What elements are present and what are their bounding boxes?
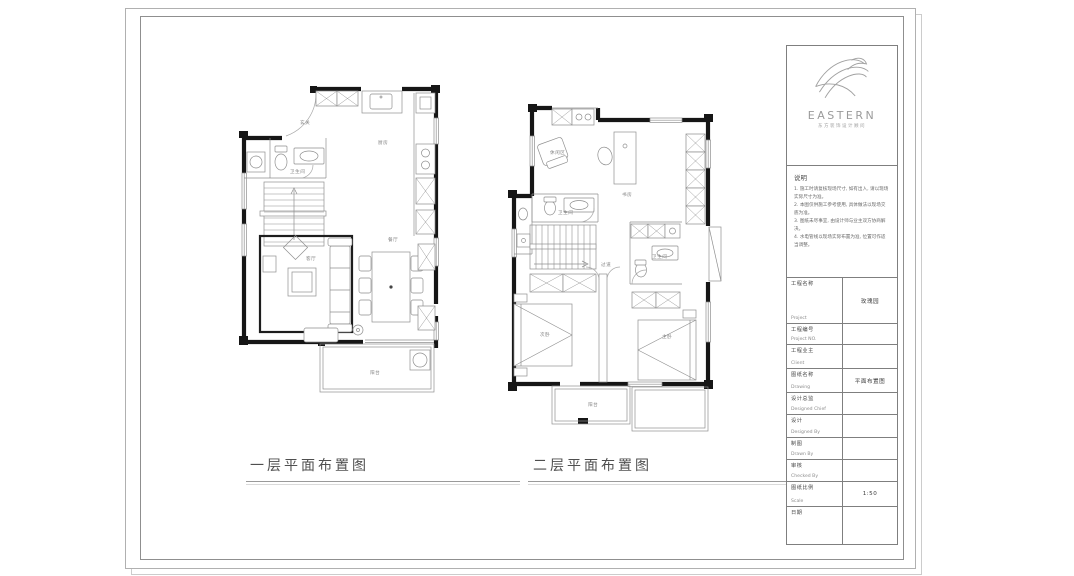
room-label-客厅: 客厅 [306,255,316,262]
field-value [843,415,897,437]
decor-diamond [283,235,307,259]
plan2-title: 二层平面布置图 [533,455,652,475]
titleblock-field-Drawing: 图纸名称Drawing平面布置图 [787,369,897,393]
floor2-wardrobe-column [686,134,705,224]
field-label-en: Scale [791,499,838,504]
field-label-en: Project [791,316,838,321]
floor-plan-second-floor: 休闲区书房卫生间卫生间过道次卧主卧阳台 [502,96,727,444]
room-label-卫生间: 卫生间 [290,168,305,175]
field-label: 工程业主Client [787,345,843,368]
field-label-en: Project NO. [791,337,838,342]
field-label-en: Checked By [791,474,838,479]
title-block-notes: 说明 1. 施工时请复核现场尺寸, 如有出入, 请以现场实际尺寸为准。2. 本图… [787,166,897,278]
titleblock-field-Scale: 图纸比例Scale1:50 [787,482,897,507]
field-label-zh: 图纸比例 [791,484,838,491]
dining-chair [359,278,371,293]
titleblock-field-Project NO.: 工程编号Project NO. [787,324,897,345]
desk-chair [596,145,614,166]
room-label-卫生间: 卫生间 [558,209,573,216]
room-label-主卧: 主卧 [662,333,672,340]
field-label-zh: 设计总监 [791,395,838,402]
note-line: 2. 本图仅供施工参考使用, 具体做法以现场交底为准。 [794,202,890,218]
title-block-fields: 工程名称Project玫瑰园工程编号Project NO.工程业主Client图… [787,278,897,544]
floor2-shower-room [514,196,532,254]
plan1-title-underline [246,481,520,485]
stove-icon [416,144,435,174]
floor1-living-room [260,235,363,342]
titleblock-field-Checked By: 审核Checked By [787,460,897,482]
field-label-zh: 工程业主 [791,347,838,354]
field-label: 工程编号Project NO. [787,324,843,344]
field-label-zh: 审核 [791,462,838,469]
field-value [843,393,897,414]
nightstand [514,294,527,302]
floor1-kitchen [316,91,435,236]
field-label-zh: 制图 [791,440,838,447]
logo-wordmark: EASTERN [787,109,897,122]
floor-lamp-icon [353,325,363,335]
titleblock-field-日期: 日期 [787,507,897,544]
room-label-餐厅: 餐厅 [388,236,398,243]
field-label-zh: 工程编号 [791,326,838,333]
field-value [843,345,897,368]
floor2-terrace-right [632,387,708,431]
notes-heading: 说明 [794,172,890,182]
title-block: EASTERN 东方装饰设计顾问 说明 1. 施工时请复核现场尺寸, 如有出入,… [786,45,898,545]
shower-pan [517,234,530,247]
field-label-en: Drawing [791,385,838,390]
field-label-en: Client [791,361,838,366]
title-block-logo-area: EASTERN 东方装饰设计顾问 [787,46,897,166]
floor-plan-first-floor: 玄关卫生间厨房客厅餐厅阳台 [230,78,455,446]
field-label: 设计Designed By [787,415,843,437]
side-table [263,256,276,272]
floor2-bay-platform [709,227,721,281]
field-label: 图纸名称Drawing [787,369,843,392]
field-label: 日期 [787,507,843,544]
dining-chair [411,278,423,293]
field-value: 1:50 [843,482,897,506]
room-label-卫生间: 卫生间 [652,253,667,260]
toilet-icon [519,208,528,220]
floor2-study [596,132,636,184]
note-line: 4. 水电管线以现场实际布置为准, 位置可作适当调整。 [794,234,890,250]
field-label: 图纸比例Scale [787,482,843,506]
field-label-zh: 设计 [791,417,838,424]
floor1-balcony [320,340,434,392]
upper-cabinet [416,93,435,113]
field-label-en: Drawn By [791,452,838,457]
room-label-阳台: 阳台 [370,369,380,376]
field-label-en: Designed Chief [791,407,838,412]
field-label-zh: 图纸名称 [791,371,838,378]
eastern-logo-icon [810,54,874,104]
drawing-canvas: 玄关卫生间厨房客厅餐厅阳台 [0,0,1074,576]
field-value [843,507,897,544]
titleblock-field-Drawn By: 制图Drawn By [787,438,897,460]
floor2-laundry-cabinets [552,108,598,125]
field-value: 平面布置图 [843,369,897,392]
sink-counter [294,148,324,164]
field-label-zh: 工程名称 [791,280,838,287]
note-line: 1. 施工时请复核现场尺寸, 如有出入, 请以现场实际尺寸为准。 [794,186,890,202]
titleblock-field-Designed Chief: 设计总监Designed Chief [787,393,897,415]
dining-chair [359,256,371,271]
sink-counter [564,198,594,212]
dining-chair [359,300,371,315]
room-label-玄关: 玄关 [300,119,310,126]
floor2-wardrobe-under-stairs [530,274,596,292]
floor1-dining [359,252,423,322]
titleblock-field-Project: 工程名称Project玫瑰园 [787,278,897,324]
bed [638,320,696,380]
nightstand [514,368,527,376]
floor2-stairs [530,225,596,269]
room-label-过道: 过道 [601,261,611,268]
field-label: 设计总监Designed Chief [787,393,843,414]
desk [614,132,636,184]
plan1-title: 一层平面布置图 [250,455,369,475]
toilet-icon [275,154,287,170]
floor2-bathroom-right [630,222,682,284]
plan2-title-underline [528,481,802,485]
field-value [843,460,897,481]
floor2-bathroom-left [532,194,598,222]
note-line: 3. 图纸未尽事宜, 由设计师与业主双方协商解决。 [794,218,890,234]
field-label: 审核Checked By [787,460,843,481]
basin-cabinet [665,224,680,238]
field-label-zh: 日期 [791,509,838,516]
room-label-阳台: 阳台 [588,401,598,408]
field-label: 工程名称Project [787,278,843,323]
field-value [843,324,897,344]
room-label-厨房: 厨房 [378,139,388,146]
toilet-icon [545,201,556,215]
logo-subtext: 东方装饰设计顾问 [787,123,897,129]
titleblock-field-Client: 工程业主Client [787,345,897,369]
room-label-书房: 书房 [622,191,632,198]
bench [304,328,338,342]
field-label: 制图Drawn By [787,438,843,459]
field-label-en: Designed By [791,430,838,435]
floor1-entry-door-arc [286,92,316,136]
floor1-bathroom [244,138,326,178]
notes-list: 1. 施工时请复核现场尺寸, 如有出入, 请以现场实际尺寸为准。2. 本图仅供施… [794,186,890,250]
room-label-休闲区: 休闲区 [550,149,565,156]
field-value [843,438,897,459]
nightstand [683,310,696,318]
room-label-次卧: 次卧 [540,331,550,338]
field-value: 玫瑰园 [843,278,897,323]
titleblock-field-Designed By: 设计Designed By [787,415,897,438]
